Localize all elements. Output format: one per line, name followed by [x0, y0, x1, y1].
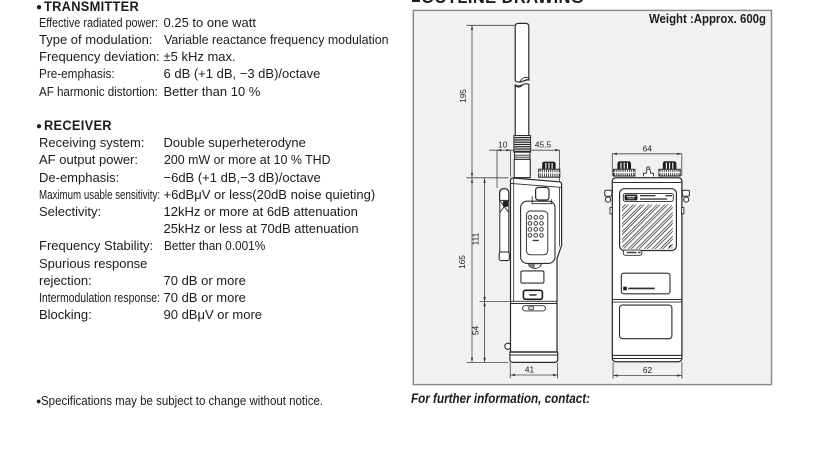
- svg-text:41: 41: [525, 364, 535, 374]
- svg-text:54: 54: [470, 326, 480, 336]
- svg-text:62: 62: [643, 365, 653, 375]
